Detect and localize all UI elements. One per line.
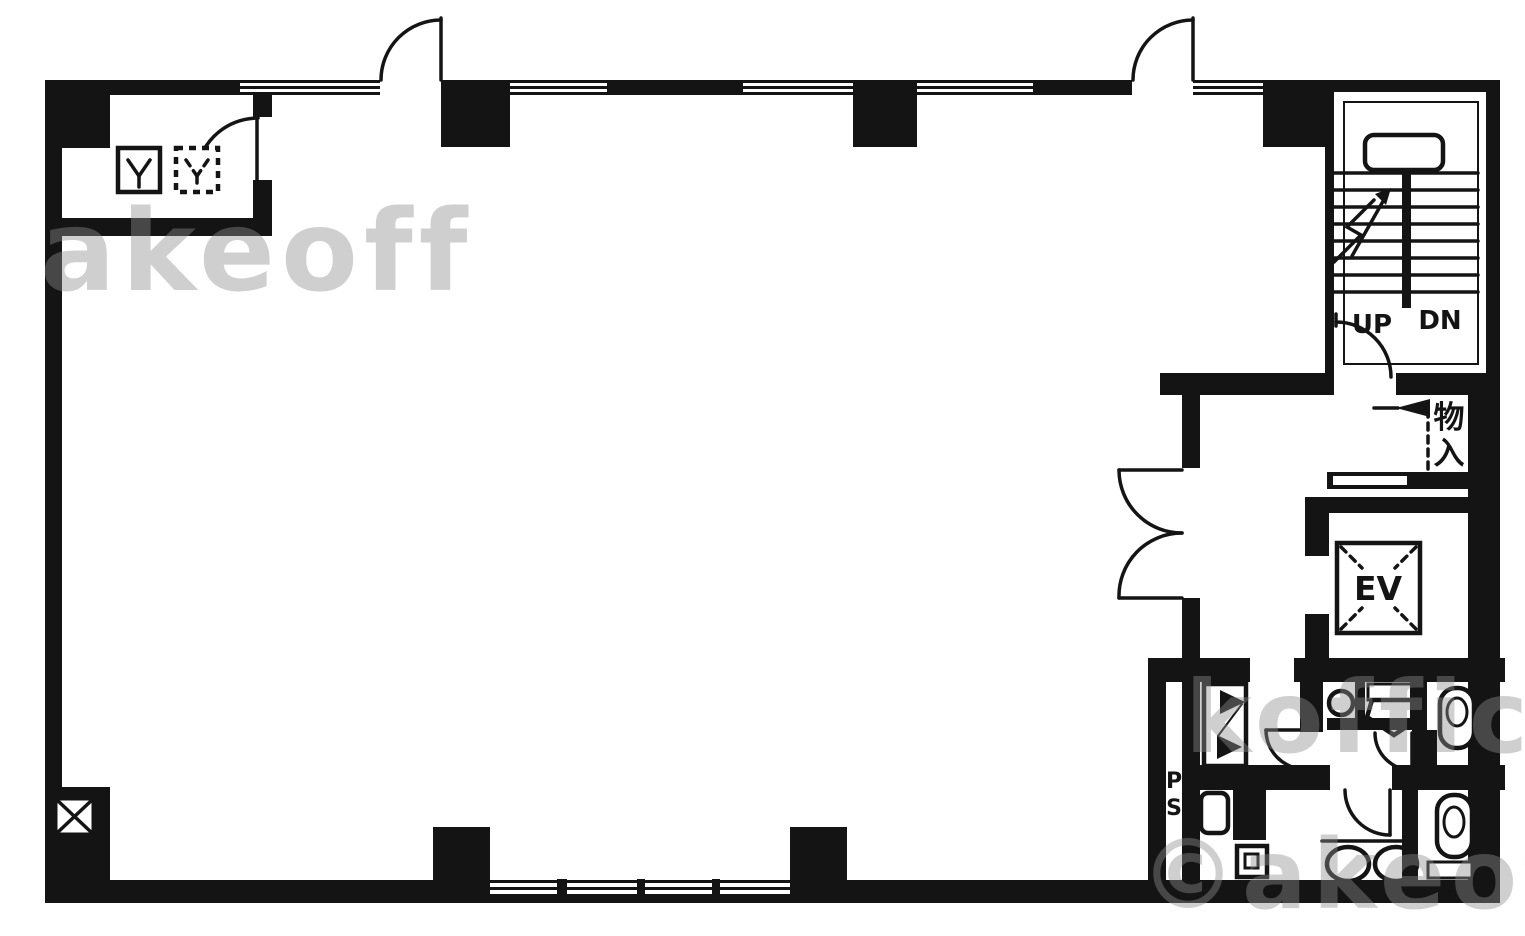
floor-plan-drawing: UP DN 物 入 EV	[0, 0, 1525, 936]
watermark-text: koffice	[1185, 659, 1525, 776]
window	[917, 79, 1033, 96]
watermark-text: akeoff	[40, 187, 473, 317]
storage-closet: 物 入	[1374, 399, 1465, 472]
down-label: DN	[1418, 306, 1461, 336]
window	[1193, 79, 1263, 96]
pillar-top-3	[1263, 80, 1325, 147]
pillar-top-2	[853, 80, 917, 147]
sink-fixture	[118, 148, 160, 192]
wall-top-stair	[1325, 80, 1500, 92]
window-mullion	[637, 879, 645, 897]
window-mullion	[557, 879, 567, 897]
wall-top-mid	[607, 80, 743, 95]
double-door-arc	[1119, 470, 1182, 598]
stair-wall-left	[1325, 92, 1334, 373]
pillar-kitchen-corner	[45, 85, 110, 148]
windows-bottom	[490, 879, 790, 903]
hall-wall-west-upper	[1182, 395, 1200, 468]
window-mullion	[712, 879, 720, 897]
storage-label-bottom: 入	[1434, 436, 1465, 472]
stair-hall-wall-bottom-left	[1160, 373, 1334, 395]
storage-label-top: 物	[1434, 400, 1465, 436]
pillar-top-1	[441, 80, 510, 147]
wall-right-upper	[1486, 80, 1500, 395]
door-arc	[381, 18, 441, 80]
shaft-wall-left-upper	[1305, 513, 1329, 556]
window	[743, 79, 853, 96]
stairwell: UP DN	[1160, 92, 1500, 395]
elevator-shaft: EV	[1305, 472, 1470, 658]
watermarks: akeoff koffice ©akeoffice	[40, 187, 1525, 931]
equipment-fixture-dashed	[176, 148, 218, 192]
storage-door-arrow-icon	[1396, 399, 1430, 417]
wall-top-right	[1033, 80, 1132, 95]
pillar-bottom-2	[790, 827, 847, 882]
window	[510, 79, 607, 96]
pipe-shaft-label-bottom: S	[1166, 796, 1182, 821]
shaft-wall-left-lower	[1305, 614, 1329, 658]
pipe-shaft-label-top: P	[1166, 769, 1182, 794]
shaft-wall-b	[1305, 497, 1470, 513]
up-label: UP	[1352, 310, 1392, 340]
stair-hall-wall-bottom-right	[1396, 373, 1500, 395]
elevator-label: EV	[1354, 569, 1403, 608]
pillar-bottom-1	[433, 827, 490, 882]
floor-plan-page: UP DN 物 入 EV	[0, 0, 1525, 936]
shaft-vent-slot	[1333, 476, 1407, 485]
wall-bottom-left	[45, 880, 490, 903]
entry-doors-top	[381, 18, 1193, 80]
stair-landing	[1365, 135, 1443, 170]
watermark-text: ©akeoffice	[1140, 819, 1525, 931]
door-arc	[1133, 18, 1193, 80]
